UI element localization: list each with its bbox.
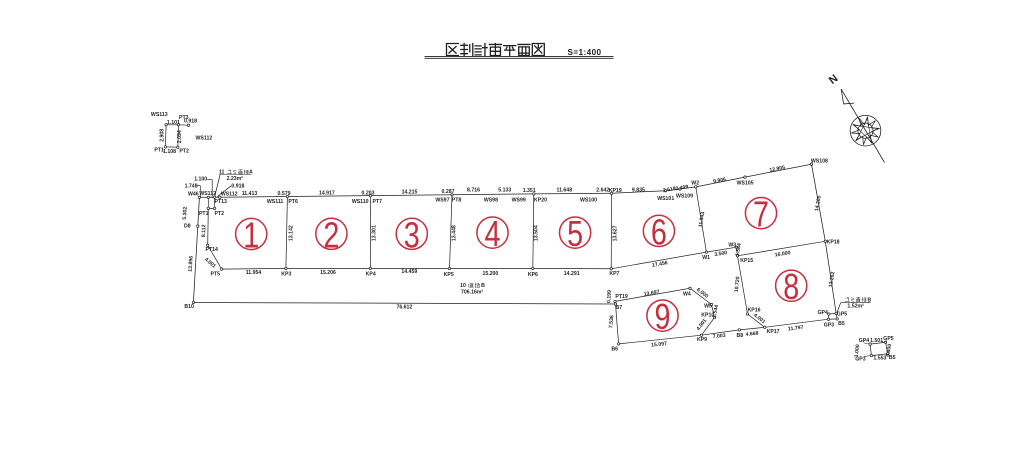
svg-text:5.302: 5.302 (182, 206, 189, 219)
svg-text:0.203: 0.203 (362, 191, 375, 197)
svg-text:1.52m²: 1.52m² (847, 304, 864, 310)
svg-text:B: B (481, 283, 485, 289)
svg-text:7.003: 7.003 (712, 333, 726, 340)
svg-text:8.112: 8.112 (201, 224, 207, 237)
svg-text:14.215: 14.215 (402, 190, 418, 196)
svg-text:GP3: GP3 (824, 323, 834, 329)
svg-text:WS101: WS101 (657, 196, 674, 202)
svg-text:13.301: 13.301 (371, 225, 377, 241)
svg-text:7: 7 (753, 194, 769, 235)
svg-text:3: 3 (404, 214, 420, 255)
svg-text:1.501: 1.501 (870, 338, 883, 344)
svg-text:WS112: WS112 (221, 192, 238, 198)
svg-text:W2: W2 (691, 181, 699, 187)
svg-text:5.133: 5.133 (498, 188, 511, 194)
svg-text:KP4: KP4 (366, 271, 376, 277)
svg-text:WS98: WS98 (484, 197, 498, 203)
svg-text:76.612: 76.612 (396, 305, 412, 311)
svg-text:0.199: 0.199 (606, 290, 613, 303)
svg-text:GP5: GP5 (883, 336, 893, 342)
svg-text:W3: W3 (728, 242, 736, 248)
svg-text:KP10: KP10 (701, 313, 714, 319)
svg-text:B5: B5 (838, 321, 845, 327)
svg-text:KP6: KP6 (528, 272, 538, 278)
svg-text:WS108: WS108 (811, 159, 828, 165)
svg-text:1.584: 1.584 (735, 243, 743, 257)
svg-text:WS110: WS110 (352, 199, 369, 205)
svg-text:B10: B10 (184, 304, 194, 310)
svg-text:PT2: PT2 (179, 149, 189, 155)
svg-text:9.906: 9.906 (713, 177, 727, 185)
svg-text:1.108: 1.108 (163, 149, 176, 155)
svg-text:14.205: 14.205 (814, 195, 823, 212)
svg-text:13.504: 13.504 (533, 225, 539, 241)
svg-text:15.200: 15.200 (482, 271, 498, 277)
svg-text:PT13: PT13 (214, 199, 227, 205)
svg-text:B8: B8 (736, 333, 743, 339)
svg-text:10.720: 10.720 (734, 276, 742, 293)
svg-text:11.954: 11.954 (246, 270, 262, 276)
svg-text:0.918: 0.918 (184, 119, 197, 125)
svg-text:WS113: WS113 (151, 112, 168, 118)
svg-text:WS112: WS112 (199, 191, 216, 197)
svg-text:PT1: PT1 (199, 211, 209, 217)
svg-text:N: N (827, 72, 841, 86)
svg-text:GP3: GP3 (855, 357, 865, 363)
svg-text:PT19: PT19 (615, 294, 628, 300)
svg-text:D8: D8 (184, 224, 191, 230)
svg-text:WS109: WS109 (676, 194, 693, 200)
svg-text:12.905: 12.905 (769, 165, 786, 174)
svg-text:2: 2 (323, 214, 339, 255)
svg-text:WS111: WS111 (267, 199, 284, 205)
svg-text:B: B (867, 297, 871, 303)
svg-text:2.642: 2.642 (596, 188, 609, 194)
svg-text:5: 5 (567, 213, 583, 254)
svg-text:13.448: 13.448 (451, 225, 457, 241)
svg-text:1.100: 1.100 (194, 177, 207, 183)
svg-text:13.142: 13.142 (288, 225, 294, 241)
svg-text:706.16m²: 706.16m² (461, 289, 483, 295)
svg-text:PT7: PT7 (372, 199, 382, 205)
svg-text:WS99: WS99 (512, 197, 526, 203)
svg-text:W5: W5 (704, 304, 712, 310)
svg-text:9: 9 (655, 296, 671, 337)
svg-text:0.918: 0.918 (231, 184, 244, 190)
svg-text:4.001: 4.001 (696, 318, 709, 332)
svg-text:PT2: PT2 (215, 211, 225, 217)
svg-text:WS112: WS112 (196, 136, 213, 142)
svg-text:0.287: 0.287 (442, 189, 455, 195)
svg-text:4.001: 4.001 (203, 257, 217, 270)
svg-text:1.101: 1.101 (167, 120, 180, 126)
svg-text:1: 1 (243, 215, 259, 256)
svg-text:PT6: PT6 (288, 199, 298, 205)
svg-text:PT5: PT5 (210, 272, 220, 278)
svg-text:KP19: KP19 (609, 188, 622, 194)
svg-text:9.835: 9.835 (632, 188, 645, 194)
svg-text:15.097: 15.097 (651, 341, 668, 349)
svg-text:W1: W1 (702, 255, 710, 261)
svg-text:1.748: 1.748 (185, 184, 198, 190)
svg-text:2.094: 2.094 (177, 130, 183, 143)
svg-text:3.499: 3.499 (675, 184, 689, 192)
svg-text:GP5: GP5 (837, 312, 847, 318)
svg-text:KP17: KP17 (767, 329, 780, 335)
svg-text:13.896: 13.896 (188, 256, 195, 272)
svg-text:KP7: KP7 (609, 271, 619, 277)
svg-text:4: 4 (485, 213, 501, 254)
svg-text:2.908: 2.908 (160, 129, 166, 142)
svg-text:1.351: 1.351 (523, 188, 536, 194)
svg-text:PT8: PT8 (452, 197, 462, 203)
svg-text:B6: B6 (611, 346, 618, 352)
svg-text:11.797: 11.797 (788, 325, 804, 333)
svg-text:GP4: GP4 (818, 310, 828, 316)
svg-text:4.668: 4.668 (745, 331, 759, 338)
svg-text:7.536: 7.536 (608, 315, 615, 329)
svg-text:14.917: 14.917 (319, 191, 335, 197)
svg-text:W4: W4 (683, 291, 691, 297)
svg-text:WS97: WS97 (435, 197, 449, 203)
svg-text:14.291: 14.291 (564, 271, 580, 277)
svg-text:KP16: KP16 (748, 308, 761, 314)
svg-text:11.648: 11.648 (557, 188, 573, 194)
svg-text:0.579: 0.579 (278, 191, 291, 197)
svg-text:2.23m²: 2.23m² (227, 176, 244, 182)
svg-text:KP20: KP20 (534, 197, 547, 203)
svg-text:10: 10 (460, 283, 466, 289)
svg-text:14.459: 14.459 (401, 269, 417, 275)
svg-text:KP5: KP5 (444, 272, 454, 278)
svg-text:PT14: PT14 (205, 247, 218, 253)
svg-text:13.262: 13.262 (828, 271, 836, 288)
svg-text:WS105: WS105 (736, 181, 753, 187)
svg-text:1.553: 1.553 (873, 356, 886, 362)
svg-text:KP18: KP18 (827, 240, 840, 246)
svg-text:GP4: GP4 (859, 338, 869, 344)
svg-text:W46: W46 (188, 192, 199, 198)
svg-text:11.943: 11.943 (698, 211, 706, 227)
svg-text:B7: B7 (615, 305, 622, 311)
svg-text:KP9: KP9 (697, 337, 707, 343)
svg-text:S=1:400: S=1:400 (568, 48, 602, 57)
svg-text:11.413: 11.413 (242, 191, 258, 197)
svg-text:KP3: KP3 (281, 271, 291, 277)
svg-text:3.500: 3.500 (714, 250, 728, 258)
svg-text:6: 6 (651, 211, 667, 252)
svg-text:WS100: WS100 (580, 197, 597, 203)
svg-text:15.206: 15.206 (320, 270, 336, 276)
svg-text:8: 8 (783, 266, 799, 307)
svg-text:B5: B5 (889, 355, 896, 361)
svg-text:16.000: 16.000 (774, 250, 791, 258)
svg-text:KP15: KP15 (740, 258, 753, 264)
svg-text:13.627: 13.627 (612, 225, 618, 241)
svg-text:8.716: 8.716 (467, 188, 480, 194)
